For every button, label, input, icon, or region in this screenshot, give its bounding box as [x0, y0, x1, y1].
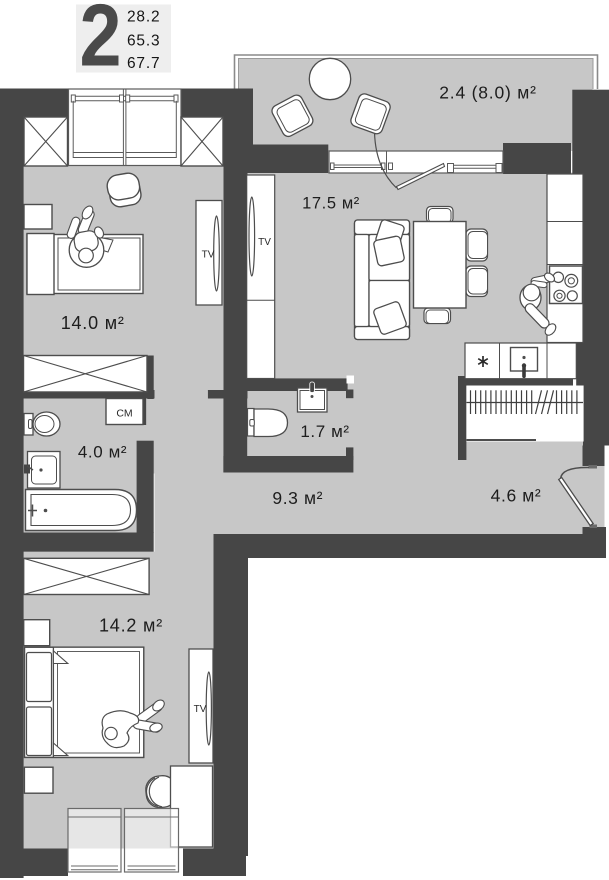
svg-text:СМ: СМ: [116, 408, 132, 420]
svg-text:2: 2: [80, 0, 122, 85]
svg-text:28.2: 28.2: [127, 9, 160, 26]
svg-text:14.0 м²: 14.0 м²: [61, 313, 125, 333]
svg-text:4.6 м²: 4.6 м²: [491, 486, 542, 506]
svg-text:2.4 (8.0) м²: 2.4 (8.0) м²: [439, 83, 537, 103]
svg-text:1.7 м²: 1.7 м²: [300, 422, 349, 441]
svg-text:9.3 м²: 9.3 м²: [272, 488, 323, 508]
svg-text:65.3: 65.3: [127, 32, 160, 49]
svg-text:14.2 м²: 14.2 м²: [99, 616, 163, 636]
svg-text:67.7: 67.7: [127, 55, 160, 72]
svg-text:TV: TV: [258, 237, 271, 248]
svg-text:TV: TV: [202, 250, 215, 261]
svg-text:TV: TV: [194, 704, 207, 715]
svg-text:17.5 м²: 17.5 м²: [302, 195, 360, 213]
svg-text:4.0 м²: 4.0 м²: [78, 443, 127, 462]
